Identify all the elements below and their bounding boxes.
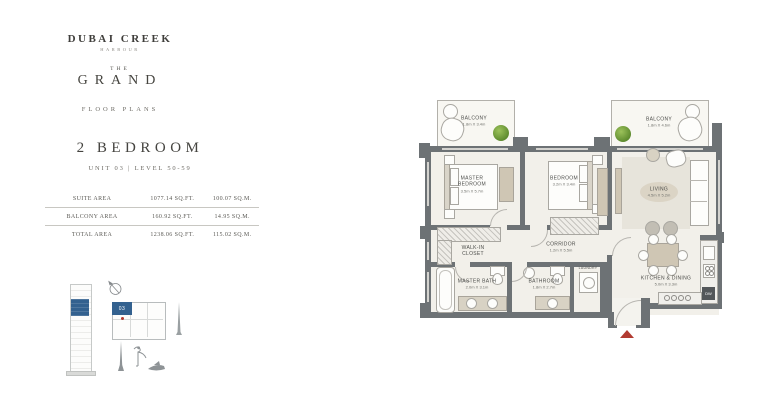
dining-table-icon bbox=[647, 243, 679, 267]
chair-icon bbox=[666, 265, 677, 276]
nightstand-icon bbox=[592, 155, 603, 165]
window bbox=[718, 160, 720, 224]
table-row: BALCONY AREA 160.92 SQ.FT. 14.95 SQ.M. bbox=[45, 208, 259, 225]
row-sqm: 115.02 SQ.M. bbox=[205, 232, 259, 238]
sink-icon bbox=[466, 298, 477, 309]
pillow-icon bbox=[579, 184, 588, 202]
room-label-laundry: LAUNDRY bbox=[579, 266, 598, 270]
sofa-cushion-line bbox=[690, 201, 707, 202]
room-label-master-bedroom: MASTER BEDROOM 3.5m X 5.7m bbox=[452, 175, 492, 193]
closet-icon bbox=[550, 217, 599, 235]
wardrobe-icon bbox=[597, 168, 608, 216]
wall-pillar bbox=[419, 143, 430, 158]
building-elevation bbox=[70, 284, 92, 374]
unit-location-dot bbox=[121, 317, 124, 320]
table-row: TOTAL AREA 1238.06 SQ.FT. 115.02 SQ.M. bbox=[45, 226, 259, 243]
row-sqft: 160.92 SQ.FT. bbox=[139, 214, 205, 220]
brand-name: DUBAI CREEK bbox=[0, 33, 240, 45]
unit-level-subtitle: UNIT 03 | LEVEL 50-59 bbox=[20, 165, 260, 172]
key-plan-unit-highlight: 03 bbox=[112, 302, 132, 315]
room-label-bedroom: BEDROOM 3.2m X 3.4m bbox=[550, 175, 578, 186]
sink-icon bbox=[703, 246, 715, 260]
wall-segment bbox=[570, 262, 574, 318]
wall-pillar bbox=[420, 303, 426, 318]
room-label-living: LIVING 4.5m X 5.2m bbox=[648, 186, 671, 197]
chair-icon bbox=[638, 250, 649, 261]
plant-icon bbox=[493, 125, 509, 141]
row-label: TOTAL AREA bbox=[45, 232, 139, 238]
wall-segment bbox=[600, 262, 612, 318]
sink-icon bbox=[487, 298, 498, 309]
window bbox=[427, 162, 429, 206]
nightstand-icon bbox=[444, 155, 455, 165]
wall-segment bbox=[520, 152, 525, 228]
row-label: SUITE AREA bbox=[45, 196, 139, 202]
wall-segment bbox=[641, 298, 650, 328]
window bbox=[617, 148, 703, 150]
entry-arrow-marker bbox=[620, 330, 634, 338]
side-table-icon bbox=[646, 148, 660, 162]
doc-type: FLOOR PLANS bbox=[0, 106, 240, 113]
window bbox=[427, 272, 429, 302]
dishwasher-icon: DW bbox=[702, 287, 715, 300]
window bbox=[427, 242, 429, 260]
room-label-bathroom: BATHROOM 1.8m X 2.7m bbox=[529, 278, 560, 289]
collection-pre: THE bbox=[0, 66, 240, 72]
collection-name: GRAND bbox=[0, 73, 240, 89]
wall-pillar bbox=[594, 137, 610, 152]
burner bbox=[678, 295, 684, 301]
pillow-icon bbox=[579, 165, 588, 183]
burner bbox=[685, 295, 691, 301]
room-label-corridor: CORRIDOR 1.2m X 5.5m bbox=[546, 241, 576, 252]
area-table: SUITE AREA 1077.14 SQ.FT. 100.07 SQ.M. B… bbox=[45, 190, 259, 243]
window bbox=[536, 148, 588, 150]
room-label-master-bath: MASTER BATH 2.0m X 3.1m bbox=[458, 278, 497, 289]
key-plan-line bbox=[147, 303, 148, 337]
creek-tower-icon bbox=[174, 302, 184, 336]
row-sqft: 1238.06 SQ.FT. bbox=[139, 232, 205, 238]
nightstand-icon bbox=[444, 209, 455, 219]
burj-icon bbox=[118, 341, 124, 371]
sink-icon bbox=[547, 298, 558, 309]
dresser-icon bbox=[499, 167, 514, 202]
wall-pillar bbox=[513, 137, 528, 152]
north-compass-icon bbox=[106, 279, 124, 297]
plant-icon bbox=[615, 126, 631, 142]
table-row: SUITE AREA 1077.14 SQ.FT. 100.07 SQ.M. bbox=[45, 190, 259, 207]
bathtub-inner bbox=[439, 270, 452, 310]
sofa-cushion-line bbox=[690, 180, 707, 181]
highlighted-levels-band bbox=[71, 299, 89, 316]
washer-drum bbox=[583, 277, 595, 289]
burner bbox=[709, 271, 714, 276]
chair-icon bbox=[648, 234, 659, 245]
window bbox=[442, 148, 508, 150]
row-sqm: 14.95 SQ.M. bbox=[205, 214, 259, 220]
wall-pillar bbox=[712, 123, 722, 152]
room-label-balcony-right: BALCONY 1.8m X 4.6m bbox=[646, 116, 672, 127]
floor-plan-sheet: DUBAI CREEK HARBOUR THE GRAND FLOOR PLAN… bbox=[0, 0, 768, 416]
tv-console-icon bbox=[615, 168, 622, 214]
row-sqm: 100.07 SQ.M. bbox=[205, 196, 259, 202]
landmark-icons bbox=[114, 341, 166, 374]
room-label-walk-in-closet: WALK-IN CLOSET bbox=[453, 245, 493, 258]
closet-icon bbox=[437, 240, 452, 265]
sofa-icon bbox=[690, 160, 709, 226]
wall-segment bbox=[425, 312, 613, 318]
chair-icon bbox=[648, 265, 659, 276]
room-label-kitchen-dining: KITCHEN & DINING 5.0m X 3.3m bbox=[641, 275, 691, 286]
chair-icon bbox=[666, 234, 677, 245]
wall-pillar bbox=[420, 226, 426, 239]
room-label-balcony-left: BALCONY 1.8m X 3.4m bbox=[461, 115, 487, 126]
row-sqft: 1077.14 SQ.FT. bbox=[139, 196, 205, 202]
brand-subname: HARBOUR bbox=[0, 47, 240, 52]
page-title: 2 BEDROOM bbox=[20, 140, 260, 157]
chair-icon bbox=[677, 250, 688, 261]
building-base bbox=[66, 371, 96, 376]
burner bbox=[671, 295, 677, 301]
burner bbox=[664, 295, 670, 301]
row-label: BALCONY AREA bbox=[45, 214, 139, 220]
